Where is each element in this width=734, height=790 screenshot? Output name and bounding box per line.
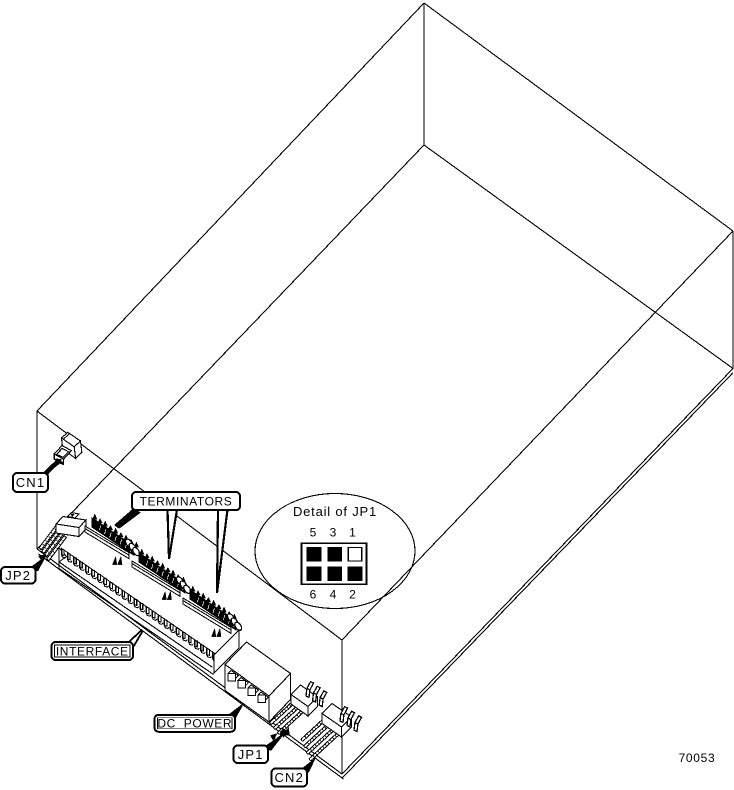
svg-text:5: 5 [310,526,317,540]
svg-text:4: 4 [330,588,337,602]
svg-text:3: 3 [330,526,337,540]
svg-text:6: 6 [310,588,317,602]
svg-text:JP2: JP2 [5,568,31,583]
svg-text:2: 2 [349,588,356,602]
svg-text:TERMINATORS: TERMINATORS [140,494,233,508]
svg-text:DC POWER: DC POWER [157,717,232,731]
svg-text:INTERFACE: INTERFACE [56,644,129,658]
svg-text:CN2: CN2 [274,770,304,785]
svg-text:CN1: CN1 [16,475,46,490]
svg-text:1: 1 [349,526,356,540]
svg-text:JP1: JP1 [238,747,264,762]
svg-text:70053: 70053 [679,751,716,765]
svg-text:Detail of JP1: Detail of JP1 [293,504,377,519]
